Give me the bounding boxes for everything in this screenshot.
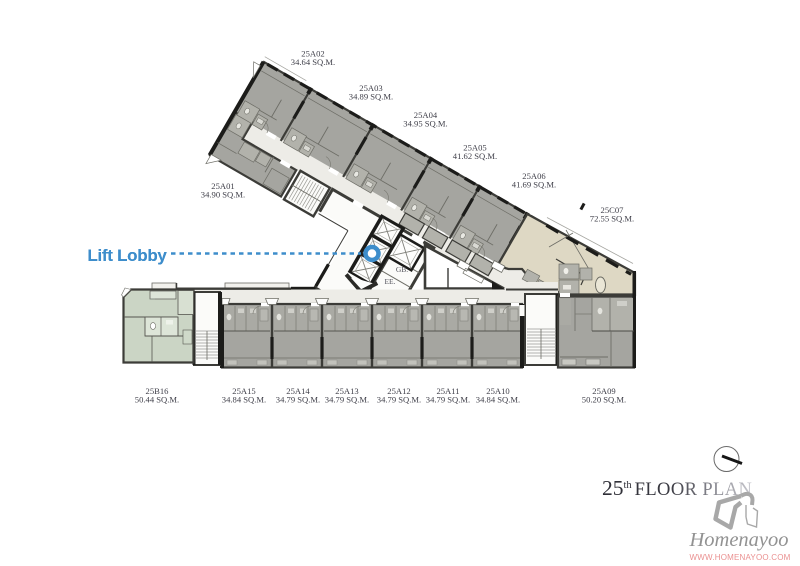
svg-text:34.64 SQ.M.: 34.64 SQ.M. [291, 57, 335, 67]
svg-text:34.95 SQ.M.: 34.95 SQ.M. [403, 119, 447, 129]
svg-text:34.89 SQ.M.: 34.89 SQ.M. [349, 92, 393, 102]
svg-text:41.62 SQ.M.: 41.62 SQ.M. [453, 151, 497, 161]
svg-text:Lift Lobby: Lift Lobby [87, 246, 167, 265]
svg-text:41.69 SQ.M.: 41.69 SQ.M. [512, 180, 556, 190]
svg-text:72.55 SQ.M.: 72.55 SQ.M. [590, 214, 634, 224]
svg-text:EE.: EE. [384, 277, 395, 286]
svg-text:GB.: GB. [396, 265, 408, 274]
svg-text:34.84 SQ.M.: 34.84 SQ.M. [476, 395, 520, 405]
svg-text:Homenayoo: Homenayoo [688, 529, 788, 551]
svg-text:34.79 SQ.M.: 34.79 SQ.M. [276, 395, 320, 405]
svg-text:34.90 SQ.M.: 34.90 SQ.M. [201, 190, 245, 200]
svg-text:34.79 SQ.M.: 34.79 SQ.M. [325, 395, 369, 405]
svg-text:34.79 SQ.M.: 34.79 SQ.M. [426, 395, 470, 405]
svg-text:50.20 SQ.M.: 50.20 SQ.M. [582, 395, 626, 405]
svg-text:34.84 SQ.M.: 34.84 SQ.M. [222, 395, 266, 405]
svg-text:WWW.HOMENAYOO.COM: WWW.HOMENAYOO.COM [689, 553, 790, 562]
svg-text:34.79 SQ.M.: 34.79 SQ.M. [377, 395, 421, 405]
svg-text:50.44 SQ.M.: 50.44 SQ.M. [135, 395, 179, 405]
